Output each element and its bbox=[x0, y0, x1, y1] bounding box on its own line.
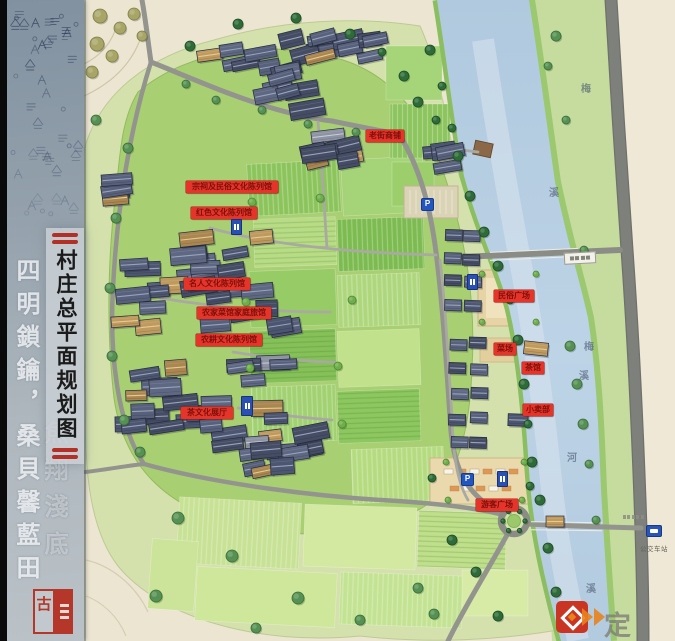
sidebar-art-panel: 四明鎖鑰，桑貝馨藍田 魚翔淺底 村庄总平面规划图 古 bbox=[0, 0, 84, 641]
seal-right bbox=[55, 589, 73, 634]
map-illustration bbox=[0, 0, 675, 641]
title-ornament-bottom bbox=[52, 446, 78, 460]
title-ornament-top bbox=[52, 231, 78, 245]
sidebar-left-border bbox=[0, 0, 7, 641]
sidebar-map-divider bbox=[84, 0, 86, 641]
plan-title-strip: 村庄总平面规划图 bbox=[46, 228, 84, 464]
watermark-chevron-icon bbox=[582, 608, 593, 626]
artist-seal: 古 bbox=[33, 589, 73, 634]
watermark-text: 定鼎网 bbox=[604, 604, 634, 641]
plan-title: 村庄总平面规划图 bbox=[50, 249, 80, 441]
sidebar-engraving-art bbox=[0, 0, 84, 250]
village-master-plan: 公交车站 老街商铺宗祠及民俗文化陈列馆红色文化陈列馆名人文化陈列馆农家菜馆家庭旅… bbox=[0, 0, 675, 641]
seal-left: 古 bbox=[33, 589, 55, 634]
